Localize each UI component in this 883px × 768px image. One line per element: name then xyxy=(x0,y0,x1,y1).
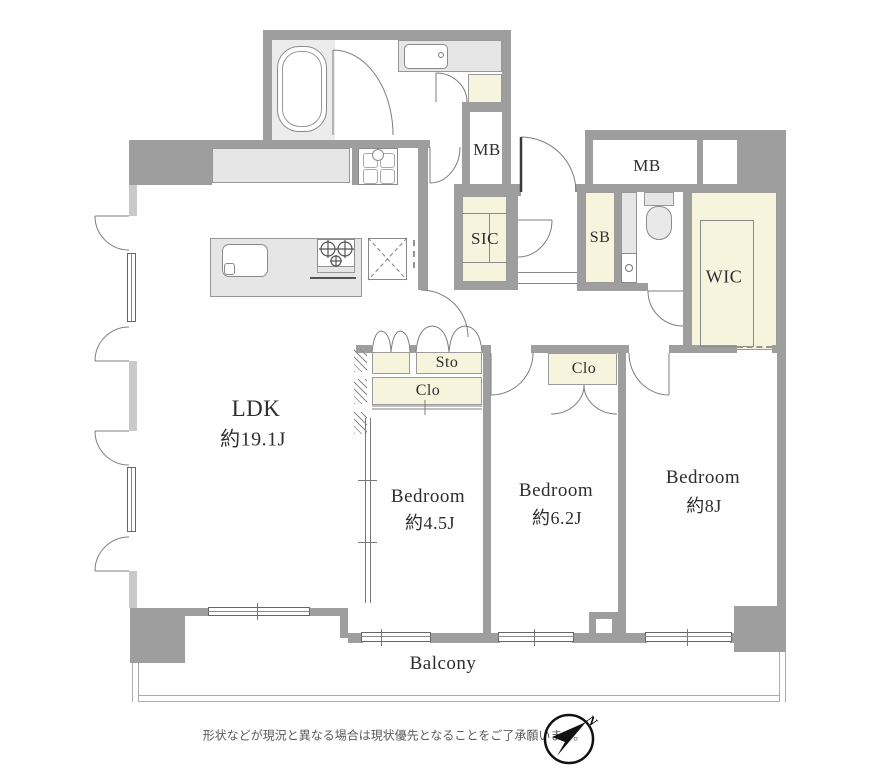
bedroom-mid-label: Bedroom xyxy=(519,480,593,502)
ldk-area-label: 約19.1J xyxy=(220,423,286,452)
disclaimer-text: 形状などが現況と異なる場合は現状優先となることをご了承願います。 xyxy=(203,727,585,744)
bedroom-large-label: Bedroom xyxy=(666,467,740,489)
mb-left-label: MB xyxy=(473,140,500,160)
sb-label: SB xyxy=(590,229,611,247)
clo-mid-label: Clo xyxy=(572,360,597,378)
bedroom-mid-area-label: 約6.2J xyxy=(532,504,582,530)
mb-right-label: MB xyxy=(633,156,660,176)
compass-icon: N xyxy=(542,710,606,768)
bedroom-large-area-label: 約8J xyxy=(686,492,722,518)
ldk-label: LDK xyxy=(232,396,281,422)
balcony-label: Balcony xyxy=(410,653,477,675)
sic-label: SIC xyxy=(471,229,499,249)
compass-north-text: N xyxy=(583,711,601,729)
bedroom-small-label: Bedroom xyxy=(391,486,465,508)
bedroom-small-area-label: 約4.5J xyxy=(405,509,455,535)
clo-small-label: Clo xyxy=(416,382,441,400)
floorplan: LDK 約19.1J Bedroom 約4.5J Bedroom 約6.2J B… xyxy=(0,0,883,768)
sto-label: Sto xyxy=(436,354,459,372)
wic-label: WIC xyxy=(706,267,743,288)
